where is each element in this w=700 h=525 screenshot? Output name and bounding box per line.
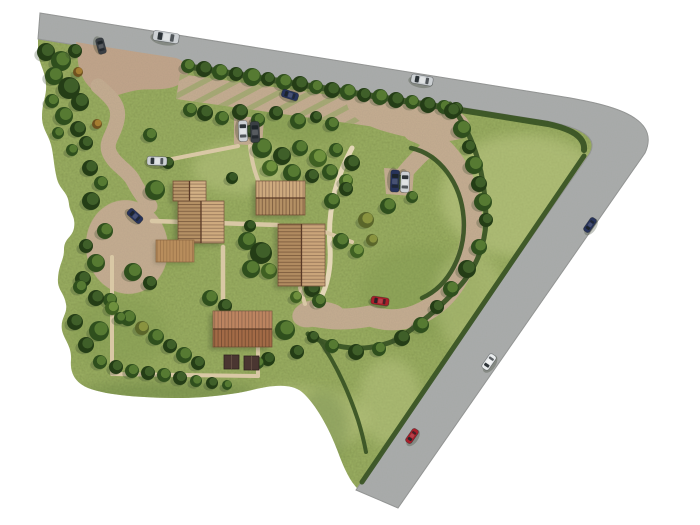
house-a-main xyxy=(174,201,224,246)
timber-deck xyxy=(154,240,194,264)
house-c xyxy=(274,224,325,289)
house-d xyxy=(209,311,272,350)
house-a-wing xyxy=(169,181,206,204)
site-plan-rendering xyxy=(0,0,700,525)
garden-bed xyxy=(224,355,239,369)
garden-bed xyxy=(244,356,259,370)
site-plan-svg xyxy=(0,0,700,525)
house-b xyxy=(252,181,305,218)
